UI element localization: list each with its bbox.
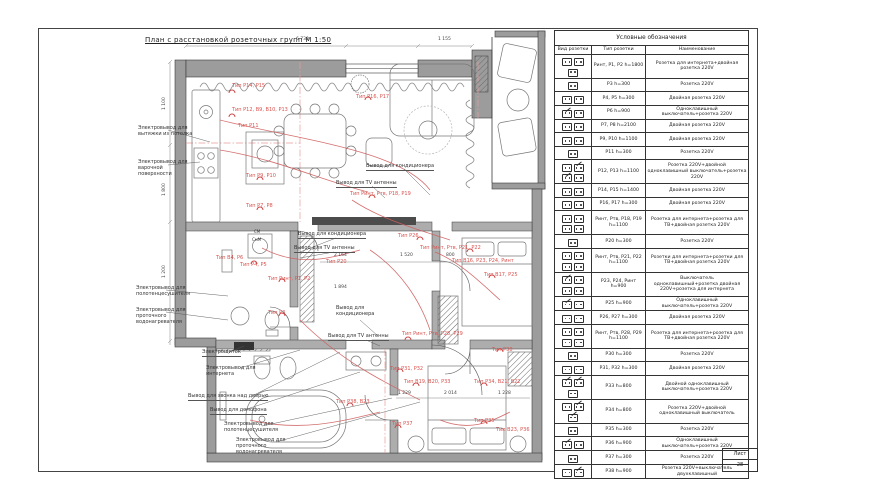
socket-name: Розетки для интернета+розетки для ТВ+дво… xyxy=(646,248,749,272)
socket-icon xyxy=(555,54,592,78)
socket-type: P11 h=300 xyxy=(592,146,646,160)
socket-name: Двойная розетка 220V xyxy=(646,197,749,211)
legend-row: Pинт, Pтв, P18, P19 h=1100Розетка для ин… xyxy=(555,211,749,235)
socket-name: Двойная розетка 220V xyxy=(646,311,749,325)
type-label: Тип P20 xyxy=(326,260,347,265)
socket-icon xyxy=(555,348,592,362)
socket-type: P34 h=800 xyxy=(592,399,646,423)
socket-type: P12, P13 h=1100 xyxy=(592,160,646,184)
socket-type: P14, P15 h=1400 xyxy=(592,184,646,198)
title-block: Лист 28 xyxy=(722,448,758,472)
socket-icon xyxy=(555,311,592,325)
socket-icon xyxy=(555,78,592,92)
socket-icon xyxy=(555,211,592,235)
annotation-ac-2: Вывод для кондиционера xyxy=(298,232,366,239)
socket-type: P6 h=900 xyxy=(592,105,646,119)
socket-type: P20 h=300 xyxy=(592,235,646,249)
dimension: 1 100 xyxy=(163,97,168,110)
sheet-number: 28 xyxy=(723,460,757,470)
socket-type: Pинт, Pтв, P18, P19 h=1100 xyxy=(592,211,646,235)
socket-icon xyxy=(555,399,592,423)
socket-icon xyxy=(555,423,592,437)
drawing-sheet: План с расстановкой розеточных групп М 1… xyxy=(0,0,888,500)
type-label: Тип P31, P32 xyxy=(390,367,423,372)
legend-row: P33 h=800Двойной одноклавишный выключате… xyxy=(555,375,749,399)
socket-type: Pинт, P1, P2 h=1800 xyxy=(592,54,646,78)
type-label: Тип B23, P36 xyxy=(496,428,530,433)
type-label: Тип P34, B21, B22 xyxy=(474,380,520,385)
type-label: Тип B16, P23, P24, Pинт xyxy=(452,259,514,264)
socket-type: P3 h=300 xyxy=(592,78,646,92)
socket-name: Одноклавишный выключатель+розетка 220V xyxy=(646,105,749,119)
legend-row: P36 h=900Одноклавишный выключатель+розет… xyxy=(555,437,749,451)
legend-col-name: Наименование xyxy=(646,46,749,55)
annotation-water-heater-2: Электровывод для проточного водонагреват… xyxy=(236,438,302,456)
legend-col-type: Тип розетки xyxy=(592,46,646,55)
socket-icon xyxy=(555,197,592,211)
socket-icon xyxy=(555,92,592,106)
socket-name: Двойная розетка 220V xyxy=(646,119,749,133)
dimension: 1 228 xyxy=(498,392,511,397)
legend-col-view: Вид розетки xyxy=(555,46,592,55)
legend-table: Условные обозначения Вид розетки Тип роз… xyxy=(554,30,749,479)
annotation-doorbell: Вывод для звонка над дверью xyxy=(188,394,268,401)
legend-row: P25 h=900Одноклавишный выключатель+розет… xyxy=(555,296,749,310)
legend-row: P20 h=300Розетка 220V xyxy=(555,235,749,249)
socket-icon xyxy=(555,248,592,272)
dimension: 6 730 xyxy=(296,38,309,43)
socket-name: Розетка 220V xyxy=(646,146,749,160)
socket-name: Розетка для интернета+розетка для ТВ+дво… xyxy=(646,211,749,235)
annotation-water-heater-1: Электровывод для проточного водонагреват… xyxy=(136,308,198,326)
socket-name: Выключатель одноклавишный+розетка двойна… xyxy=(646,272,749,296)
socket-type: P36 h=900 xyxy=(592,437,646,451)
annotation-intercom: Вывод для домофона xyxy=(210,408,267,415)
socket-icon xyxy=(555,464,592,478)
socket-name: Двойная розетка 220V xyxy=(646,184,749,198)
socket-type: P33 h=800 xyxy=(592,375,646,399)
socket-type: P7, P8 h=2100 xyxy=(592,119,646,133)
type-label: Тип P16, P17 xyxy=(356,95,389,100)
legend-row: P26, P27 h=300Двойная розетка 220V xyxy=(555,311,749,325)
socket-type: P9, P10 h=1100 xyxy=(592,133,646,147)
socket-icon xyxy=(555,296,592,310)
socket-icon xyxy=(555,375,592,399)
annotation-tv-3: Вывод для TV антенны xyxy=(328,334,389,341)
type-label: Тип Pинт, Pтв, P18, P19 xyxy=(350,192,411,197)
type-label: Тип P3 xyxy=(268,311,285,316)
type-label: Тип P35 xyxy=(474,419,495,424)
socket-name: Розетка 220V xyxy=(646,423,749,437)
type-label: Тип Pинт, P1, P2 xyxy=(268,277,310,282)
legend-row: P12, P13 h=1100Розетка 220V+двойной одно… xyxy=(555,160,749,184)
socket-name: Розетка 220V+двойной одноклавишный выклю… xyxy=(646,399,749,423)
socket-type: P31, P32 h=300 xyxy=(592,362,646,376)
legend-row: P38 h=900Розетка 220V+выключатель двухкл… xyxy=(555,464,749,478)
annotation-ac-3: Вывод для кондиционера xyxy=(336,306,380,318)
type-label: Тип P14, P15 xyxy=(232,84,265,89)
socket-icon xyxy=(555,362,592,376)
legend-row: P35 h=300Розетка 220V xyxy=(555,423,749,437)
type-label: Тип Pинт, Pтв, P21, P22 xyxy=(420,246,481,251)
socket-type: P30 h=300 xyxy=(592,348,646,362)
type-label: Тип P7, P8 xyxy=(246,204,273,209)
socket-icon xyxy=(555,160,592,184)
type-label: Тип Pинт, Pтв, P28, P29 xyxy=(402,332,463,337)
annotation-hood: Электровывод для вытяжки из потолка xyxy=(138,126,196,138)
socket-type: P4, P5 h=300 xyxy=(592,92,646,106)
socket-icon xyxy=(555,184,592,198)
legend-row: P14, P15 h=1400Двойная розетка 220V xyxy=(555,184,749,198)
socket-type: Pинт, Pтв, P28, P29 h=1100 xyxy=(592,324,646,348)
annotation-towel-dryer-2: Электровывод для полотенцесушителя xyxy=(224,422,288,434)
legend-row: Pинт, P1, P2 h=1800Розетка для интернета… xyxy=(555,54,749,78)
legend-row: Pинт, Pтв, P21, P22 h=1100Розетки для ин… xyxy=(555,248,749,272)
dimension: 1 800 xyxy=(163,183,168,196)
socket-icon xyxy=(555,146,592,160)
dimension: 1 155 xyxy=(438,38,451,43)
socket-name: Одноклавишный выключатель+розетка 220V xyxy=(646,296,749,310)
annotation-cooktop: Электровывод для варочной поверхности xyxy=(138,160,196,178)
type-label: Тип P4, P5 xyxy=(240,263,267,268)
socket-type: P38 h=900 xyxy=(592,464,646,478)
legend-row: P9, P10 h=1100Двойная розетка 220V xyxy=(555,133,749,147)
legend-row: P34 h=800Розетка 220V+двойной одноклавиш… xyxy=(555,399,749,423)
dimension: 800 xyxy=(446,254,455,259)
socket-type: P26, P27 h=300 xyxy=(592,311,646,325)
socket-name: Розетка для интернета+розетка для ТВ+дво… xyxy=(646,324,749,348)
socket-icon xyxy=(555,437,592,451)
socket-type: P16, P17 h=300 xyxy=(592,197,646,211)
dimension: 1 894 xyxy=(334,286,347,291)
dryer-label: СмМ xyxy=(252,238,261,242)
socket-name: Двойная розетка 220V xyxy=(646,362,749,376)
socket-name: Розетка 220V+двойной одноклавишный выклю… xyxy=(646,160,749,184)
legend-title: Условные обозначения xyxy=(555,31,749,46)
type-label: Тип P12, B9, B10, P13 xyxy=(232,108,288,113)
socket-name: Двойной одноклавишный выключатель+розетк… xyxy=(646,375,749,399)
socket-type: P37 h=300 xyxy=(592,451,646,465)
socket-name: Розетка 220V xyxy=(646,78,749,92)
annotation-tv-1: Вывод для TV антенны xyxy=(336,181,397,188)
type-label: Тип B4, P6 xyxy=(216,256,243,261)
legend-row: P23, P24, Pинт h=900Выключатель одноклав… xyxy=(555,272,749,296)
type-label: Тип P9, P10 xyxy=(246,174,276,179)
socket-type: P25 h=900 xyxy=(592,296,646,310)
socket-icon xyxy=(555,105,592,119)
sheet-label: Лист xyxy=(723,449,757,460)
dimension: 2 164 xyxy=(334,254,347,259)
socket-icon xyxy=(555,324,592,348)
type-label: Тип P11 xyxy=(238,124,259,129)
annotation-tv-2: Вывод для TV антенны xyxy=(294,246,355,253)
legend-row: P4, P5 h=300Двойная розетка 220V xyxy=(555,92,749,106)
annotation-internet: Электровывод для интернета xyxy=(206,366,266,378)
type-label: Тип P37 xyxy=(392,422,413,427)
socket-icon xyxy=(555,133,592,147)
type-label: Тип B19, B20, P33 xyxy=(404,380,450,385)
legend-row: P37 h=300Розетка 220V xyxy=(555,451,749,465)
legend-row: P6 h=900Одноклавишный выключатель+розетк… xyxy=(555,105,749,119)
legend-row: P3 h=300Розетка 220V xyxy=(555,78,749,92)
type-label: Тип B17, P25 xyxy=(484,273,518,278)
socket-name: Розетка 220V xyxy=(646,235,749,249)
type-label: Тип P26 xyxy=(398,234,419,239)
legend-row: Pинт, Pтв, P28, P29 h=1100Розетка для ин… xyxy=(555,324,749,348)
socket-icon xyxy=(555,272,592,296)
socket-name: Двойная розетка 220V xyxy=(646,133,749,147)
socket-icon xyxy=(555,235,592,249)
socket-name: Розетка 220V xyxy=(646,348,749,362)
socket-type: P35 h=300 xyxy=(592,423,646,437)
annotation-ac-1: Вывод для кондиционера xyxy=(366,164,434,171)
socket-type: Pинт, Pтв, P21, P22 h=1100 xyxy=(592,248,646,272)
legend-row: P16, P17 h=300Двойная розетка 220V xyxy=(555,197,749,211)
socket-icon xyxy=(555,451,592,465)
legend-row: P11 h=300Розетка 220V xyxy=(555,146,749,160)
legend-row: P7, P8 h=2100Двойная розетка 220V xyxy=(555,119,749,133)
dimension: 1 200 xyxy=(163,265,168,278)
socket-name: Двойная розетка 220V xyxy=(646,92,749,106)
dimension: 2 014 xyxy=(444,392,457,397)
socket-type: P23, P24, Pинт h=900 xyxy=(592,272,646,296)
legend-row: P31, P32 h=300Двойная розетка 220V xyxy=(555,362,749,376)
dimension: 1 520 xyxy=(400,254,413,259)
legend-rows: Pинт, P1, P2 h=1800Розетка для интернета… xyxy=(555,54,749,479)
type-label: Тип P30 xyxy=(492,348,513,353)
annotation-towel-dryer-1: Электровывод для полотенцесушителя xyxy=(136,286,198,298)
legend-row: P30 h=300Розетка 220V xyxy=(555,348,749,362)
dimension: 1 229 xyxy=(398,392,411,397)
socket-name: Розетка для интернета+двойная розетка 22… xyxy=(646,54,749,78)
annotation-electrical-panel: Электрощиток xyxy=(202,350,241,357)
socket-icon xyxy=(555,119,592,133)
type-label: Тип P38, B23 xyxy=(336,400,370,405)
washer-label: СМ xyxy=(254,230,260,234)
